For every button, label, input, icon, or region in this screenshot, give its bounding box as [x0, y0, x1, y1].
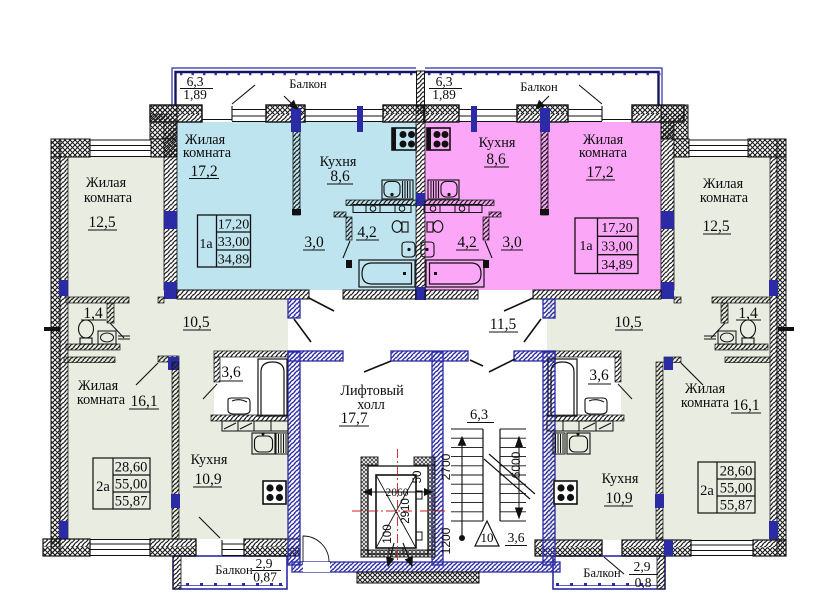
- svg-text:3,6: 3,6: [589, 367, 609, 384]
- svg-text:17,2: 17,2: [190, 163, 217, 180]
- svg-text:2060: 2060: [386, 487, 409, 499]
- svg-text:17,20: 17,20: [601, 221, 633, 236]
- svg-text:Жилая: Жилая: [86, 175, 127, 191]
- svg-text:1,89: 1,89: [183, 87, 207, 102]
- svg-text:100: 100: [382, 524, 394, 543]
- svg-text:11,5: 11,5: [490, 316, 517, 333]
- svg-text:33,00: 33,00: [218, 235, 250, 250]
- svg-text:33,00: 33,00: [601, 240, 633, 255]
- svg-text:34,89: 34,89: [218, 253, 250, 268]
- svg-text:10: 10: [481, 530, 494, 545]
- svg-text:Балкон: Балкон: [520, 80, 558, 94]
- svg-text:комната: комната: [579, 145, 628, 161]
- svg-text:55,87: 55,87: [115, 494, 148, 510]
- svg-text:10,5: 10,5: [182, 314, 209, 331]
- svg-text:комната: комната: [183, 145, 232, 161]
- svg-text:17,7: 17,7: [340, 410, 367, 427]
- svg-text:10,5: 10,5: [614, 314, 641, 331]
- svg-text:Балкон: Балкон: [289, 77, 327, 91]
- svg-text:6000: 6000: [509, 451, 523, 478]
- svg-text:Балкон: Балкон: [215, 563, 253, 577]
- svg-text:1а: 1а: [199, 237, 213, 252]
- svg-text:3,6: 3,6: [508, 530, 525, 545]
- svg-text:4,2: 4,2: [357, 224, 376, 241]
- svg-text:16,1: 16,1: [130, 393, 157, 410]
- svg-text:16,1: 16,1: [732, 397, 759, 414]
- svg-text:12,5: 12,5: [702, 218, 729, 235]
- svg-text:28,60: 28,60: [115, 460, 148, 476]
- svg-text:3,6: 3,6: [221, 364, 241, 381]
- svg-text:55,87: 55,87: [720, 498, 753, 514]
- svg-text:6,3: 6,3: [470, 407, 488, 423]
- svg-text:0,87: 0,87: [253, 570, 277, 585]
- svg-text:комната: комната: [77, 392, 126, 408]
- svg-text:2а: 2а: [700, 483, 714, 499]
- svg-text:комната: комната: [84, 190, 133, 206]
- svg-text:3,0: 3,0: [304, 234, 324, 251]
- svg-text:10,9: 10,9: [605, 490, 632, 507]
- svg-text:2700: 2700: [439, 453, 453, 480]
- svg-text:комната: комната: [700, 190, 749, 206]
- svg-text:50: 50: [412, 471, 424, 484]
- svg-text:Кухня: Кухня: [191, 452, 228, 468]
- svg-text:2910: 2910: [400, 498, 412, 524]
- svg-text:Балкон: Балкон: [583, 566, 621, 580]
- svg-text:55,00: 55,00: [720, 481, 753, 497]
- svg-text:Кухня: Кухня: [479, 135, 516, 151]
- svg-text:1а: 1а: [579, 239, 593, 254]
- svg-text:8,6: 8,6: [486, 151, 506, 168]
- svg-text:17,2: 17,2: [586, 164, 613, 181]
- svg-text:3,0: 3,0: [502, 234, 522, 251]
- svg-text:8,6: 8,6: [330, 168, 350, 185]
- svg-text:1,89: 1,89: [432, 87, 456, 102]
- svg-text:Кухня: Кухня: [602, 471, 639, 487]
- svg-text:0,8: 0,8: [635, 575, 652, 590]
- svg-text:2,9: 2,9: [634, 559, 651, 574]
- svg-text:1200: 1200: [439, 527, 453, 554]
- svg-text:12,5: 12,5: [88, 214, 115, 231]
- svg-text:17,20: 17,20: [218, 218, 250, 233]
- svg-text:1,4: 1,4: [738, 305, 758, 322]
- svg-text:1,4: 1,4: [83, 305, 103, 322]
- svg-text:55,00: 55,00: [115, 477, 148, 493]
- svg-text:34,89: 34,89: [601, 258, 633, 273]
- svg-text:10,9: 10,9: [194, 471, 221, 488]
- svg-text:комната: комната: [681, 395, 730, 411]
- svg-text:4,2: 4,2: [457, 234, 476, 251]
- svg-text:28,60: 28,60: [720, 464, 753, 480]
- svg-text:2а: 2а: [96, 479, 110, 495]
